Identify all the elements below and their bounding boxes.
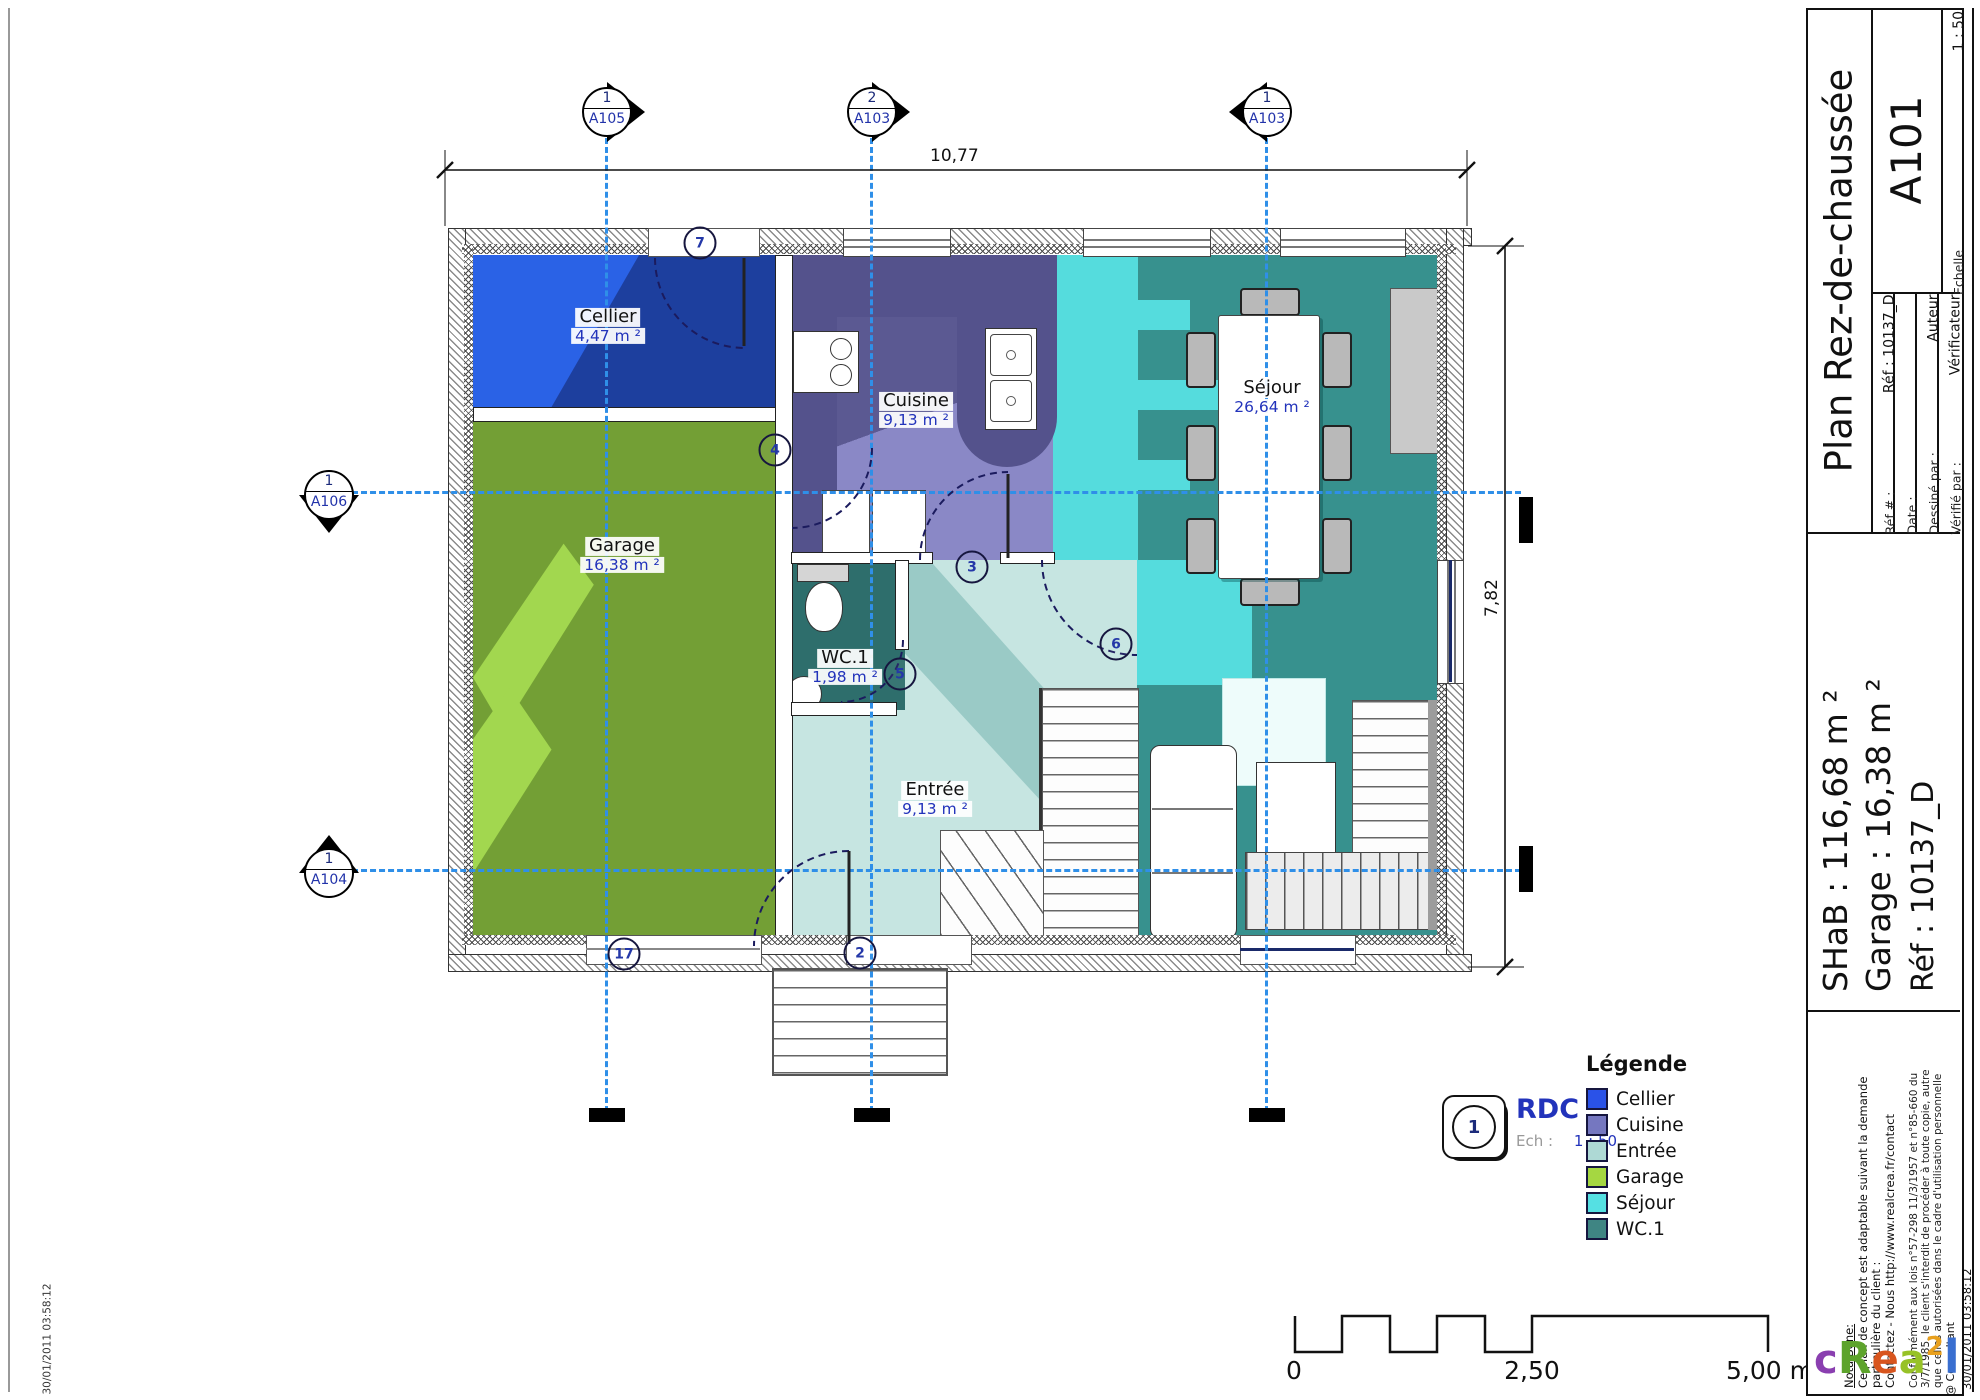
legend-swatch-sejour xyxy=(1586,1192,1608,1214)
wall-wc-right xyxy=(895,560,909,650)
gridline-end-bar-4 xyxy=(1519,497,1533,543)
room-label-cellier: Cellier 4,47 m ² xyxy=(571,308,645,344)
sejour-window-top-2 xyxy=(1280,228,1406,257)
scalebar-label-middle: 2,50 xyxy=(1497,1356,1567,1385)
grid-bubble-a105-sheet: A105 xyxy=(589,109,625,129)
sink-drain-2 xyxy=(1006,396,1016,406)
sheet-title: Plan Rez-de-chaussée xyxy=(1806,8,1871,532)
gridline-a104 xyxy=(352,869,1521,872)
room-area-garage: 16,38 m ² xyxy=(580,557,664,573)
field-drawnby-label: Dessiné par : xyxy=(1926,452,1941,534)
gridline-a106 xyxy=(352,491,1521,494)
view-marker-circle: 1 xyxy=(1452,1105,1496,1149)
dining-table xyxy=(1218,315,1320,579)
wall-cellier-garage xyxy=(473,407,777,422)
legend-swatch-cuisine xyxy=(1586,1114,1608,1136)
legend-item-sejour: Séjour xyxy=(1586,1190,1687,1216)
dimension-height: 7,82 xyxy=(1482,568,1502,628)
date-stamp-left-text: 30/01/2011 03:58:12 xyxy=(42,1283,55,1394)
dining-chair-right-1 xyxy=(1322,332,1352,388)
wall-cuisine-entree-a xyxy=(791,552,933,564)
view-marker-box: 1 xyxy=(1442,1095,1506,1159)
legend-swatch-cellier xyxy=(1586,1088,1608,1110)
door-tag-4: 4 xyxy=(759,434,792,467)
room-name-cuisine: Cuisine xyxy=(879,392,953,411)
dining-chair-left-2 xyxy=(1186,425,1216,481)
drawing-sheet: 10,77 7,82 1 A105 2 A103 1 A103 1 A106 1… xyxy=(0,0,1980,1400)
scale-row-value: 1 : 50 xyxy=(1950,11,1966,51)
stove-burner-2 xyxy=(830,364,852,386)
legend-label-sejour: Séjour xyxy=(1616,1193,1675,1214)
room-name-wc: WC.1 xyxy=(817,649,873,668)
legend-item-garage: Garage xyxy=(1586,1164,1687,1190)
wall-mid-vertical xyxy=(775,255,793,937)
grid-bubble-a106-sheet: A106 xyxy=(311,492,347,512)
title-block-hline-sec2 xyxy=(1806,1010,1960,1012)
sejour-cyan-tab3 xyxy=(1138,460,1190,490)
dining-chair-right-3 xyxy=(1322,518,1352,574)
kitchen-stove xyxy=(793,331,859,393)
scalebar-label-start: 0 xyxy=(1286,1356,1302,1385)
sejour-cyan-tab1 xyxy=(1138,300,1190,330)
grid-bubble-a106: 1 A106 xyxy=(304,470,354,520)
grid-bubble-a103-1-number: 1 xyxy=(1263,89,1272,108)
entree-stairs xyxy=(1042,688,1139,937)
grid-bubble-a104-sheet: A104 xyxy=(311,870,347,890)
door-tag-7: 7 xyxy=(684,227,717,260)
legend-label-entree: Entrée xyxy=(1616,1141,1677,1162)
room-name-cellier: Cellier xyxy=(575,308,640,327)
summary-ref: Réf : 10137_D xyxy=(1906,532,1941,1010)
door-tag-6: 6 xyxy=(1100,628,1133,661)
field-row-drawnby: Dessiné par : Auteur xyxy=(1923,285,1945,540)
logo-letter-c: c xyxy=(1814,1337,1838,1383)
room-area-entree: 9,13 m ² xyxy=(898,801,972,817)
sheet-title-text: Plan Rez-de-chaussée xyxy=(1817,68,1860,472)
room-name-sejour: Séjour xyxy=(1239,379,1304,398)
grid-bubble-a105: 1 A105 xyxy=(582,87,632,137)
gridline-end-bar-2 xyxy=(854,1108,890,1122)
sejour-cyan-band xyxy=(1053,255,1138,560)
door-tag-2: 2 xyxy=(844,937,877,970)
sejour-window-top-1 xyxy=(1083,228,1211,257)
legend-title: Légende xyxy=(1586,1052,1687,1076)
cuisine-window xyxy=(843,228,951,257)
legend: Légende Cellier Cuisine Entrée Garage Sé… xyxy=(1586,1052,1687,1242)
legend-item-cellier: Cellier xyxy=(1586,1086,1687,1112)
field-checkedby-label: Vérifié par : xyxy=(1948,462,1963,534)
room-area-cuisine: 9,13 m ² xyxy=(879,412,953,428)
field-row-ref: Réf # : Réf : 10137_D xyxy=(1879,285,1901,540)
door-tag-3: 3 xyxy=(956,551,989,584)
date-stamp-left: 30/01/2011 03:58:12 xyxy=(42,1245,55,1395)
dimension-width: 10,77 xyxy=(930,146,979,166)
view-marker-scale-label: Ech : xyxy=(1516,1132,1553,1150)
legend-label-garage: Garage xyxy=(1616,1167,1684,1188)
wall-cuisine-entree-b xyxy=(1000,552,1055,564)
field-ref-value: Réf : 10137_D xyxy=(1882,295,1898,394)
sejour-stair-horizontal-run xyxy=(1245,852,1430,930)
sejour-stair-shadow xyxy=(1428,700,1437,930)
dining-chair-left-3 xyxy=(1186,518,1216,574)
sofa-cushion-line1 xyxy=(1152,808,1233,810)
field-drawnby-value: Auteur xyxy=(1926,295,1942,342)
legend-swatch-entree xyxy=(1586,1140,1608,1162)
legend-label-cuisine: Cuisine xyxy=(1616,1115,1684,1136)
room-area-cellier: 4,47 m ² xyxy=(571,328,645,344)
sejour-window-right-frame xyxy=(1449,560,1452,682)
room-name-garage: Garage xyxy=(585,537,659,556)
gridline-a105 xyxy=(605,138,608,1112)
dining-chair-top xyxy=(1240,288,1300,316)
field-date-label: Date : xyxy=(1904,496,1919,534)
room-label-sejour: Séjour 26,64 m ² xyxy=(1230,379,1314,415)
legend-item-cuisine: Cuisine xyxy=(1586,1112,1687,1138)
field-ref-label: Réf # : xyxy=(1882,492,1897,535)
insulation-left xyxy=(464,244,473,944)
room-area-wc: 1,98 m ² xyxy=(808,669,882,685)
crea-logo: cRea2l xyxy=(1814,1330,1960,1384)
grid-bubble-a103-2-number: 2 xyxy=(868,89,877,108)
date-stamp-right: 30/01/2011 03:58:12 xyxy=(1960,1178,1974,1390)
room-name-entree: Entrée xyxy=(902,781,969,800)
sofa xyxy=(1150,745,1237,939)
grid-bubble-a104: 1 A104 xyxy=(304,848,354,898)
door-tag-17: 17 xyxy=(608,938,641,971)
legend-item-entree: Entrée xyxy=(1586,1138,1687,1164)
gridline-end-bar-3 xyxy=(1249,1108,1285,1122)
grid-bubble-a103-1-sheet: A103 xyxy=(1249,109,1285,129)
grid-bubble-a106-number: 1 xyxy=(325,472,334,491)
logo-letter-a: a xyxy=(1899,1337,1926,1383)
date-stamp-right-text: 30/01/2011 03:58:12 xyxy=(1960,1268,1974,1390)
sejour-stair-vertical-run xyxy=(1352,700,1430,854)
gridline-a103-1 xyxy=(1265,138,1268,1112)
wc-toilet-bowl xyxy=(805,582,843,632)
wc-toilet-tank xyxy=(797,564,849,582)
summary-shab: SHaB : 116,68 m ² xyxy=(1816,532,1855,1010)
room-label-garage: Garage 16,38 m ² xyxy=(580,537,664,573)
gridline-end-bar-5 xyxy=(1519,846,1533,892)
entree-stairs-winder xyxy=(940,830,1044,937)
logo-letter-2: 2 xyxy=(1926,1332,1944,1362)
logo-letter-e: e xyxy=(1872,1337,1899,1383)
gridline-end-bar-1 xyxy=(589,1108,625,1122)
title-block-vline-2 xyxy=(1941,8,1943,292)
sideboard xyxy=(1390,288,1442,454)
dining-chair-bottom xyxy=(1240,578,1300,606)
sheet-number-cell: A101 xyxy=(1871,8,1941,292)
porch-steps xyxy=(772,968,948,1076)
summary-block: SHaB : 116,68 m ² Garage : 16,38 m ² Réf… xyxy=(1806,532,1960,1010)
grid-bubble-a103-2-sheet: A103 xyxy=(854,109,890,129)
coffee-table xyxy=(1256,762,1336,854)
room-label-wc: WC.1 1,98 m ² xyxy=(808,649,882,685)
dining-chair-left-1 xyxy=(1186,332,1216,388)
grid-bubble-a104-number: 1 xyxy=(325,850,334,869)
sink-drain-1 xyxy=(1006,350,1016,360)
scale-row: Echelle 1 : 50 xyxy=(1949,1,1968,300)
stove-burner-1 xyxy=(830,338,852,360)
room-area-sejour: 26,64 m ² xyxy=(1230,399,1314,415)
legend-swatch-wc xyxy=(1586,1218,1608,1240)
legend-label-wc: WC.1 xyxy=(1616,1219,1665,1240)
sejour-window-bottom-frame xyxy=(1240,948,1354,951)
field-checkedby-value: Vérificateur xyxy=(1948,295,1964,376)
wall-wc-bottom xyxy=(791,702,897,716)
legend-label-cellier: Cellier xyxy=(1616,1089,1675,1110)
grid-bubble-a105-number: 1 xyxy=(603,89,612,108)
sheet-border-left xyxy=(8,8,10,1392)
dining-chair-right-2 xyxy=(1322,425,1352,481)
grid-bubble-a103-2: 2 A103 xyxy=(847,87,897,137)
room-label-cuisine: Cuisine 9,13 m ² xyxy=(879,392,953,428)
logo-letter-r: R xyxy=(1838,1333,1872,1384)
summary-garage: Garage : 16,38 m ² xyxy=(1859,532,1898,1010)
legend-swatch-garage xyxy=(1586,1166,1608,1188)
legend-item-wc: WC.1 xyxy=(1586,1216,1687,1242)
logo-letter-l: l xyxy=(1944,1330,1960,1384)
gridline-a103-2 xyxy=(870,138,873,1112)
field-row-date: Date : xyxy=(1901,285,1923,540)
room-label-entree: Entrée 9,13 m ² xyxy=(898,781,972,817)
grid-bubble-a103-1: 1 A103 xyxy=(1242,87,1292,137)
view-marker-label: RDC xyxy=(1516,1094,1579,1125)
door-tag-5: 5 xyxy=(884,658,917,691)
field-row-checkedby: Vérifié par : Vérificateur xyxy=(1945,285,1967,540)
sheet-number-text: A101 xyxy=(1882,96,1931,205)
sofa-cushion-line2 xyxy=(1152,872,1233,874)
